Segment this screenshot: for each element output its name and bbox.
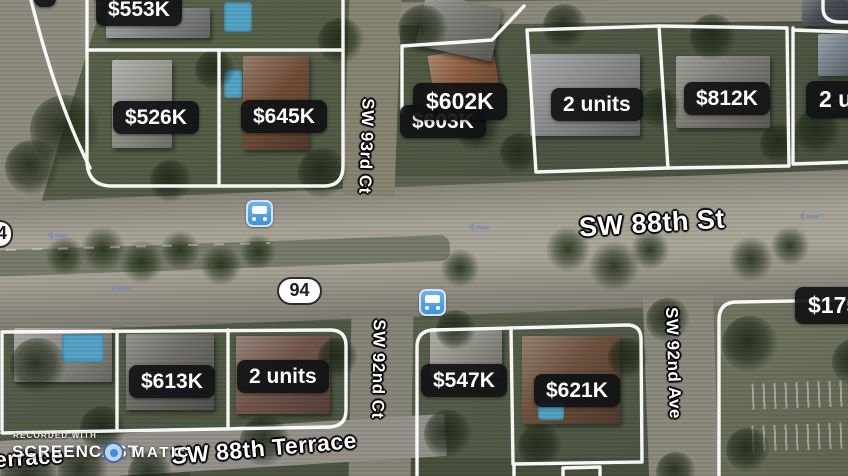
logo-center-dot: [110, 449, 118, 457]
price-label-613k[interactable]: $613K: [129, 365, 215, 398]
watermark-recorded-with-text: RECORDED WITH: [13, 431, 97, 440]
bus-stop-icon[interactable]: [246, 200, 273, 227]
parcel-boundary-lines: [0, 0, 848, 476]
price-label-175-partial[interactable]: $175: [795, 287, 848, 324]
price-label-553k[interactable]: $553K: [96, 0, 182, 26]
price-label-2units-bottom[interactable]: 2 units: [237, 360, 329, 393]
price-label-645k[interactable]: $645K: [241, 100, 327, 133]
bus-light: [252, 217, 256, 221]
satellite-map-canvas[interactable]: SW 88th St SW 88th Terrace errace SW 93r…: [0, 0, 848, 476]
bus-stop-icon[interactable]: [419, 289, 446, 316]
price-label-812k[interactable]: $812K: [684, 82, 770, 115]
price-label-526k[interactable]: $526K: [113, 101, 199, 134]
street-label-sw-92nd-ct: SW 92nd Ct: [367, 309, 389, 429]
bus-light: [263, 217, 267, 221]
bus-light: [436, 306, 440, 310]
screencast-o-matic-watermark: RECORDED WITH SCREENCAST MATIC: [10, 429, 250, 473]
street-label-sw-93rd-ct: SW 93rd Ct: [354, 86, 378, 207]
bus-windshield: [425, 295, 440, 303]
price-label-2units-top[interactable]: 2 units: [551, 88, 643, 121]
watermark-brand-matic: MATIC: [132, 444, 191, 461]
price-label-547k[interactable]: $547K: [421, 364, 507, 397]
price-label-602k[interactable]: $602K: [413, 83, 507, 120]
bus-windshield: [252, 206, 267, 214]
price-label-621k[interactable]: $621K: [534, 374, 620, 407]
screencast-o-matic-logo-icon: [103, 442, 124, 463]
bus-light: [425, 306, 429, 310]
route-shield-94: 94: [277, 277, 322, 305]
price-label-2units-right-partial[interactable]: 2 units: [806, 81, 848, 118]
